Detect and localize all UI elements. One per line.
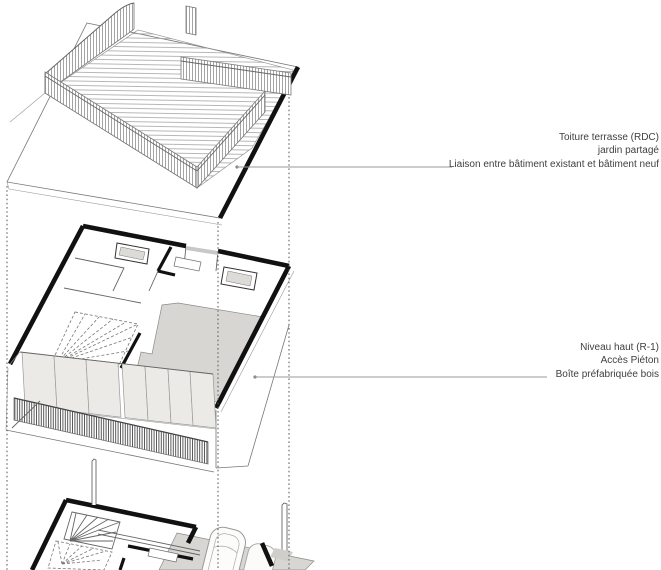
annotation-roof-terrace: Toiture terrasse (RDC) jardin partagé Li… [339,131,659,171]
winder-stair-lower-dashed [48,541,112,570]
lower-level-drawing [32,500,314,570]
upper-level-drawing [6,226,294,472]
roof-terrace-drawing [7,3,298,225]
right-slab-edge [248,325,289,466]
slab-left-edge [6,368,8,430]
exploded-axonometric-diagram: Toiture terrasse (RDC) jardin partagé Li… [0,0,661,570]
annotation-upper-level: Niveau haut (R-1) Accès Piéton Boîte pré… [339,341,659,381]
drawing-canvas [0,0,661,570]
annotation-upper-line3: Boîte préfabriquée bois [339,368,659,381]
winder-stair-solid [64,512,120,549]
post-left [92,459,96,505]
roof-slab-edge [7,182,222,225]
annotation-upper-line2: Accès Piéton [339,354,659,367]
annotation-roof-line3: Liaison entre bâtiment existant et bâtim… [339,158,659,171]
post-right [282,503,287,551]
slab-bottom-right [216,466,248,468]
annotation-roof-line2: jardin partagé [339,144,659,157]
annotation-upper-line1: Niveau haut (R-1) [339,341,659,354]
annotation-roof-line1: Toiture terrasse (RDC) [339,131,659,144]
bridge-gap-railing-post [186,6,196,35]
